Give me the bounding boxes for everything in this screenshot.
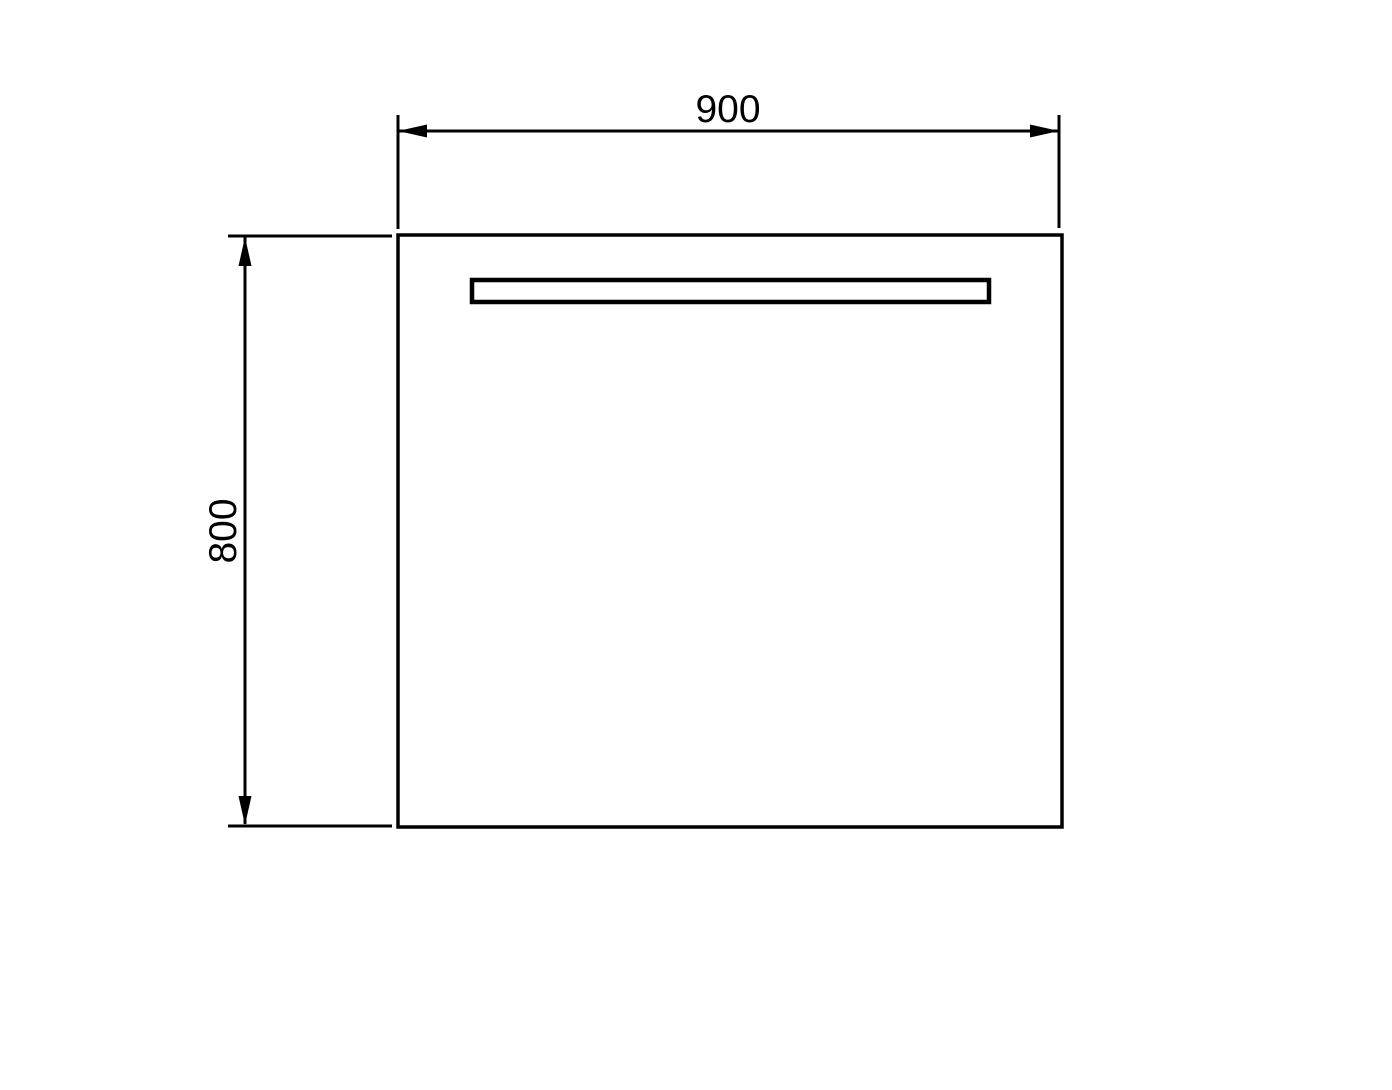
height-dimension: 800 [202, 236, 392, 826]
width-arrow-left-icon [398, 125, 427, 138]
product-outline [398, 235, 1062, 827]
drawing-page: 900 800 [0, 0, 1392, 1090]
height-arrow-up-icon [239, 237, 252, 266]
inner-bar-outline [472, 280, 989, 302]
height-dimension-label: 800 [202, 498, 245, 563]
height-arrow-down-icon [239, 796, 252, 825]
width-arrow-right-icon [1030, 125, 1059, 138]
technical-drawing-canvas: 900 800 [0, 0, 1392, 1090]
width-dimension: 900 [398, 88, 1059, 229]
width-dimension-label: 900 [695, 88, 760, 131]
